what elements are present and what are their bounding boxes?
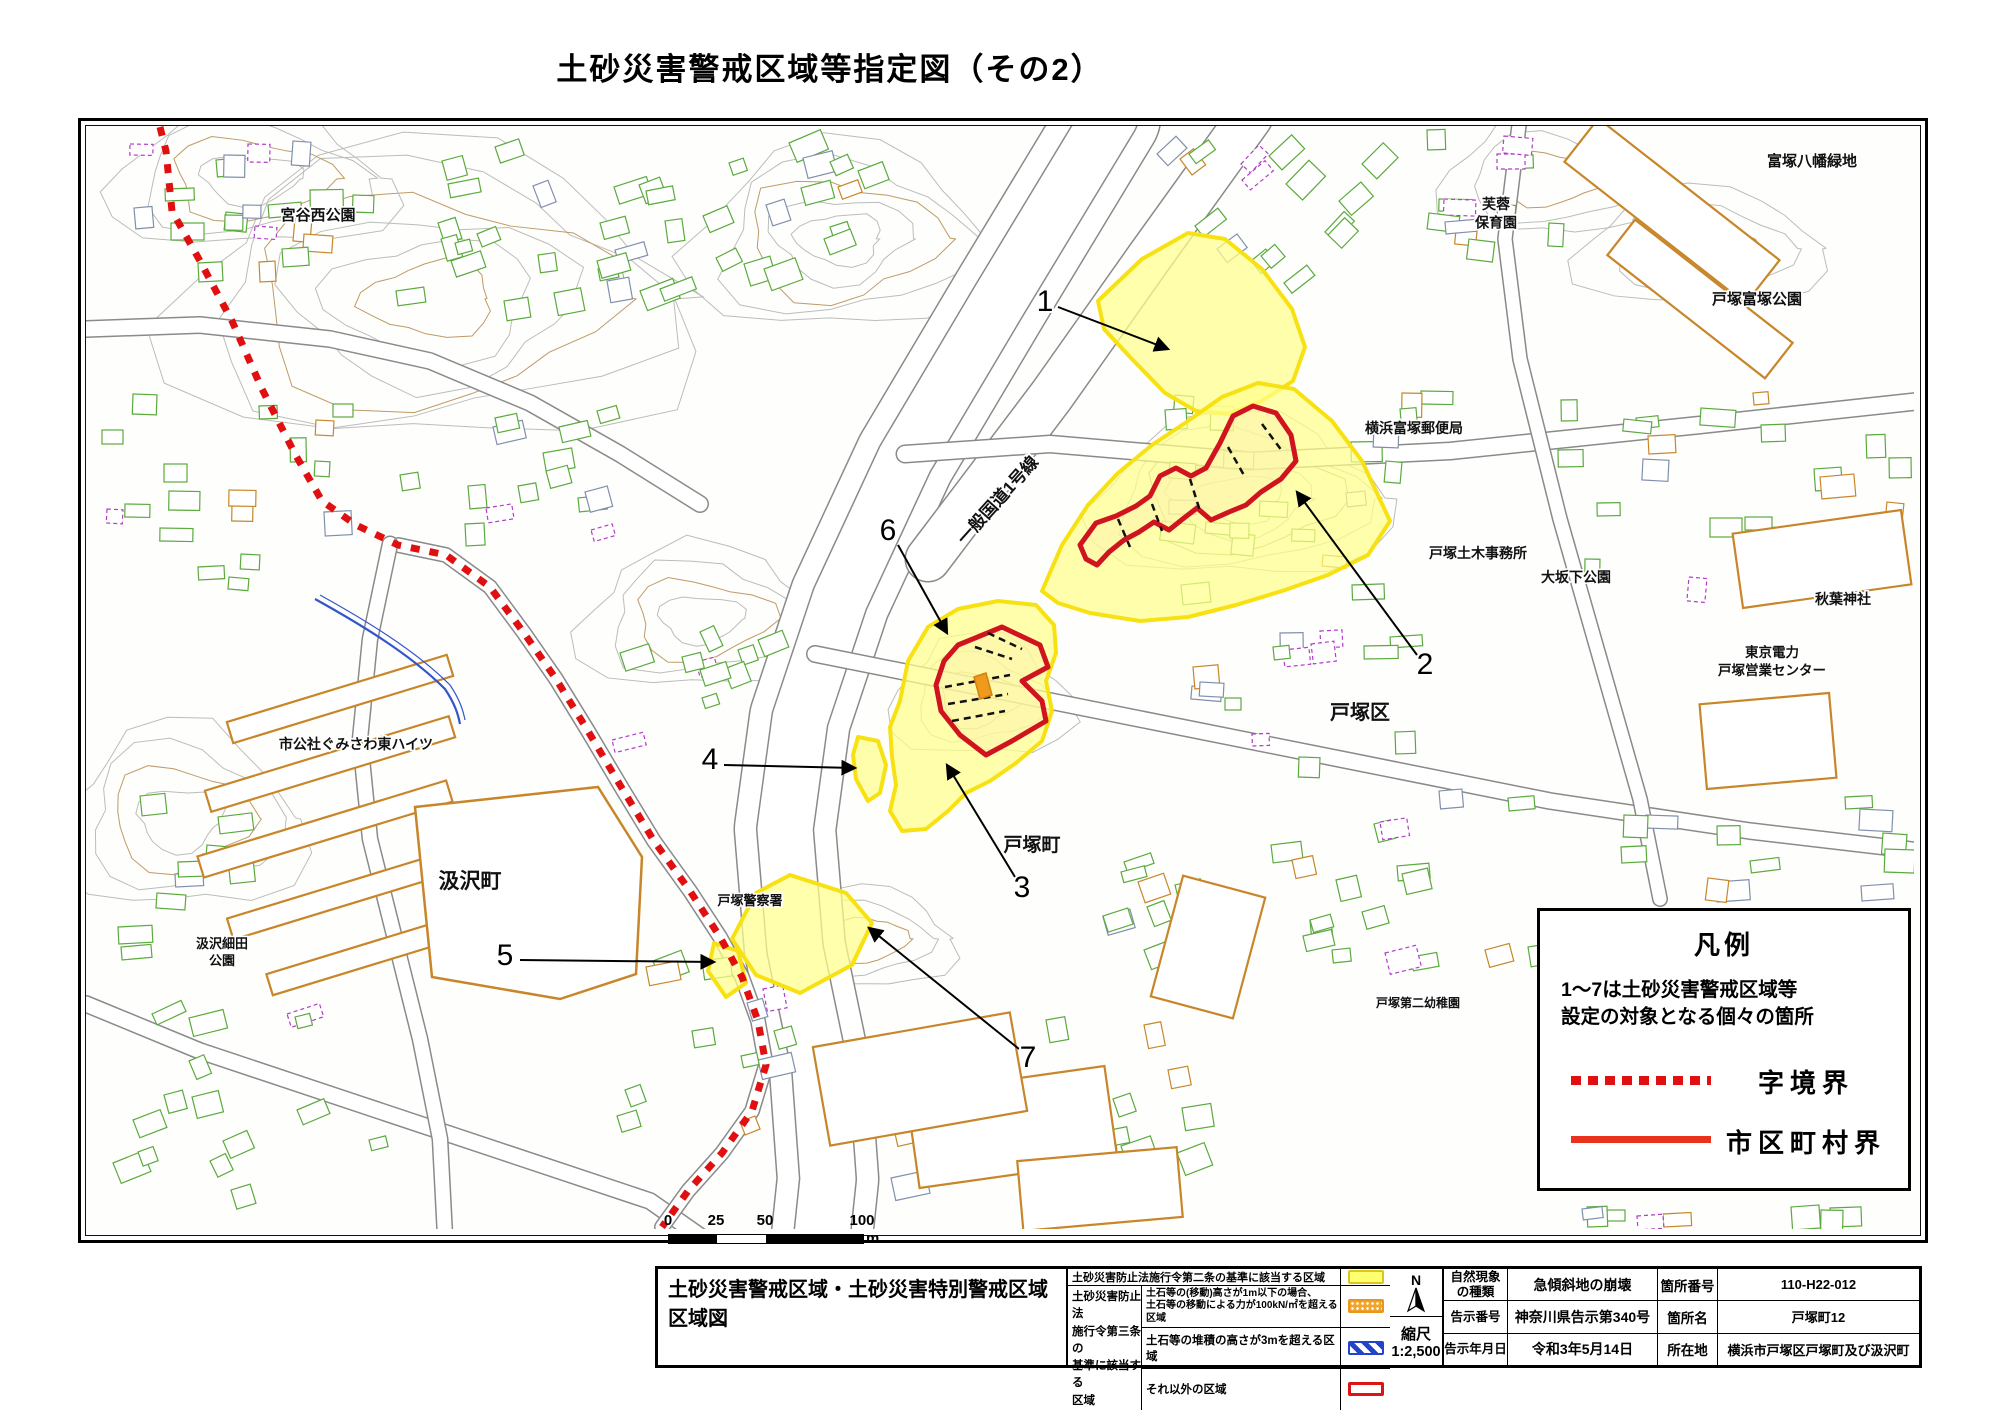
law3-rows: 土砂災害防止法 施行令第三条の 基準に該当する 区域 土石等の(移動)高さが1m… <box>1068 1286 1390 1410</box>
site-number-value: 110-H22-012 <box>1718 1269 1919 1300</box>
legend-item-label: 字境界 <box>1758 1063 1854 1100</box>
page-title: 土砂災害警戒区域等指定図（その2） <box>300 44 1360 89</box>
legend-note-line1: 1～7は土砂災害警戒区域等 <box>1561 977 1814 1004</box>
info-table: 土砂災害警戒区域・土砂災害特別警戒区域 区域図 土砂災害防止法施行令第二条の基準… <box>655 1266 1922 1368</box>
details-row-3: 告示年月日 令和3年5月14日 所在地 横浜市戸塚区戸塚町及び汲沢町 <box>1444 1334 1919 1365</box>
legend-item-municipal-boundary: 市区町村界 <box>1540 1123 1908 1157</box>
place-label: 戸塚町 <box>1003 834 1060 856</box>
place-label: 戸塚第二幼稚園 <box>1376 995 1460 1010</box>
place-label: 戸塚富塚公園 <box>1712 290 1802 308</box>
svg-text:1: 1 <box>1037 285 1054 318</box>
scale-tick-25: 25 <box>708 1212 725 1229</box>
compass-cell: N <box>1390 1269 1442 1317</box>
svg-text:3: 3 <box>1014 871 1031 904</box>
notice-number-label: 告示番号 <box>1444 1301 1508 1332</box>
law3-row2-swatch-cell <box>1340 1328 1390 1369</box>
scale-cell: 縮尺 1:2,500 <box>1390 1317 1442 1365</box>
place-label: 保育園 <box>1474 214 1517 230</box>
notice-number-value: 神奈川県告示第340号 <box>1508 1301 1658 1332</box>
nature-type-label: 自然現象の種類 <box>1444 1269 1508 1300</box>
yellow-zone-swatch <box>1348 1270 1384 1284</box>
place-label: 戸塚警察署 <box>717 893 782 908</box>
compass-n-label: N <box>1411 1273 1421 1287</box>
place-label: 汲沢町 <box>439 870 502 893</box>
hazard-map-page: 土砂災害警戒区域等指定図（その2） 1234567一般国道1号線宮谷西公園富塚八… <box>0 0 1999 1413</box>
scale-tick-50: 50 <box>757 1212 774 1229</box>
north-arrow-icon <box>1405 1287 1427 1313</box>
svg-text:7: 7 <box>1020 1041 1037 1074</box>
svg-text:6: 6 <box>880 514 897 547</box>
dotted-line-sample <box>1571 1076 1711 1085</box>
law3-label: 土砂災害防止法 施行令第三条の 基準に該当する 区域 <box>1068 1286 1142 1410</box>
place-label: 公園 <box>209 953 235 968</box>
law-legend-section: 土砂災害防止法施行令第二条の基準に該当する区域 土砂災害防止法 施行令第三条の … <box>1068 1269 1390 1365</box>
site-name-value: 戸塚町12 <box>1718 1301 1919 1332</box>
scale-segment <box>766 1235 863 1243</box>
location-value: 横浜市戸塚区戸塚町及び汲沢町 <box>1718 1334 1919 1365</box>
blue-hatch-zone-swatch <box>1348 1341 1384 1355</box>
place-label: 横浜富塚郵便局 <box>1365 420 1463 436</box>
red-outline-zone-swatch <box>1348 1382 1384 1396</box>
legend-box: 凡例 1～7は土砂災害警戒区域等 設定の対象となる個々の箇所 字境界 市区町村界 <box>1537 908 1911 1191</box>
place-label: 大坂下公園 <box>1541 569 1611 585</box>
place-label: 宮谷西公園 <box>280 206 355 224</box>
scale-label: 縮尺 <box>1401 1323 1431 1344</box>
scale-tick-0: 0 <box>664 1212 672 1229</box>
law2-text: 土砂災害防止法施行令第二条の基準に該当する区域 <box>1068 1269 1340 1285</box>
solid-line-sample <box>1571 1136 1711 1143</box>
legend-note-line2: 設定の対象となる個々の箇所 <box>1561 1004 1814 1031</box>
scale-value: 1:2,500 <box>1391 1344 1440 1360</box>
notice-date-value: 令和3年5月14日 <box>1508 1334 1658 1365</box>
law3-row-1: 土石等の(移動)高さが1m以下の場合、 土石等の移動による力が100kN/㎡を超… <box>1142 1286 1390 1328</box>
law2-swatch-cell <box>1340 1269 1390 1285</box>
details-section: 自然現象の種類 急傾斜地の崩壊 箇所番号 110-H22-012 告示番号 神奈… <box>1444 1269 1919 1365</box>
nature-type-value: 急傾斜地の崩壊 <box>1508 1269 1658 1300</box>
orange-zone-swatch <box>1348 1299 1384 1313</box>
place-label: 汲沢細田 <box>196 936 248 951</box>
details-row-2: 告示番号 神奈川県告示第340号 箇所名 戸塚町12 <box>1444 1301 1919 1333</box>
legend-item-label: 市区町村界 <box>1726 1123 1886 1160</box>
law3-row3-swatch-cell <box>1340 1369 1390 1410</box>
map-sheet-title: 土砂災害警戒区域・土砂災害特別警戒区域 区域図 <box>658 1269 1068 1365</box>
scale-segment <box>717 1235 766 1243</box>
place-label: 戸塚営業センター <box>1718 662 1826 678</box>
location-label: 所在地 <box>1658 1334 1718 1365</box>
place-label: 秋葉神社 <box>1815 591 1871 607</box>
law3-row1-swatch-cell <box>1340 1286 1390 1327</box>
scale-unit: m <box>866 1230 879 1247</box>
notice-date-label: 告示年月日 <box>1444 1334 1508 1365</box>
details-row-1: 自然現象の種類 急傾斜地の崩壊 箇所番号 110-H22-012 <box>1444 1269 1919 1301</box>
scale-segment <box>669 1235 717 1243</box>
site-name-label: 箇所名 <box>1658 1301 1718 1332</box>
legend-note: 1～7は土砂災害警戒区域等 設定の対象となる個々の箇所 <box>1561 977 1814 1032</box>
legend-item-aza-boundary: 字境界 <box>1540 1063 1908 1097</box>
law3-row-3: それ以外の区域 <box>1142 1369 1390 1410</box>
site-number-label: 箇所番号 <box>1658 1269 1718 1300</box>
place-label: 芙蓉 <box>1481 196 1511 212</box>
svg-text:4: 4 <box>702 743 719 776</box>
place-label: 戸塚区 <box>1330 701 1390 724</box>
place-label: 市公社ぐみさわ東ハイツ <box>279 736 433 752</box>
scale-bar: 0 25 50 100 m <box>640 1212 940 1258</box>
law2-row: 土砂災害防止法施行令第二条の基準に該当する区域 <box>1068 1269 1390 1286</box>
svg-text:5: 5 <box>497 939 514 972</box>
scale-bar-graphic <box>668 1234 864 1244</box>
place-label: 富塚八幡緑地 <box>1767 152 1857 170</box>
place-label: 戸塚土木事務所 <box>1429 545 1527 561</box>
place-label: 東京電力 <box>1745 644 1799 660</box>
legend-title: 凡例 <box>1540 925 1908 962</box>
compass-scale-section: N 縮尺 1:2,500 <box>1390 1269 1444 1365</box>
scale-tick-100: 100 <box>849 1212 874 1229</box>
svg-text:2: 2 <box>1417 648 1434 681</box>
law3-row-2: 土石等の堆積の高さが3mを超える区域 <box>1142 1328 1390 1370</box>
